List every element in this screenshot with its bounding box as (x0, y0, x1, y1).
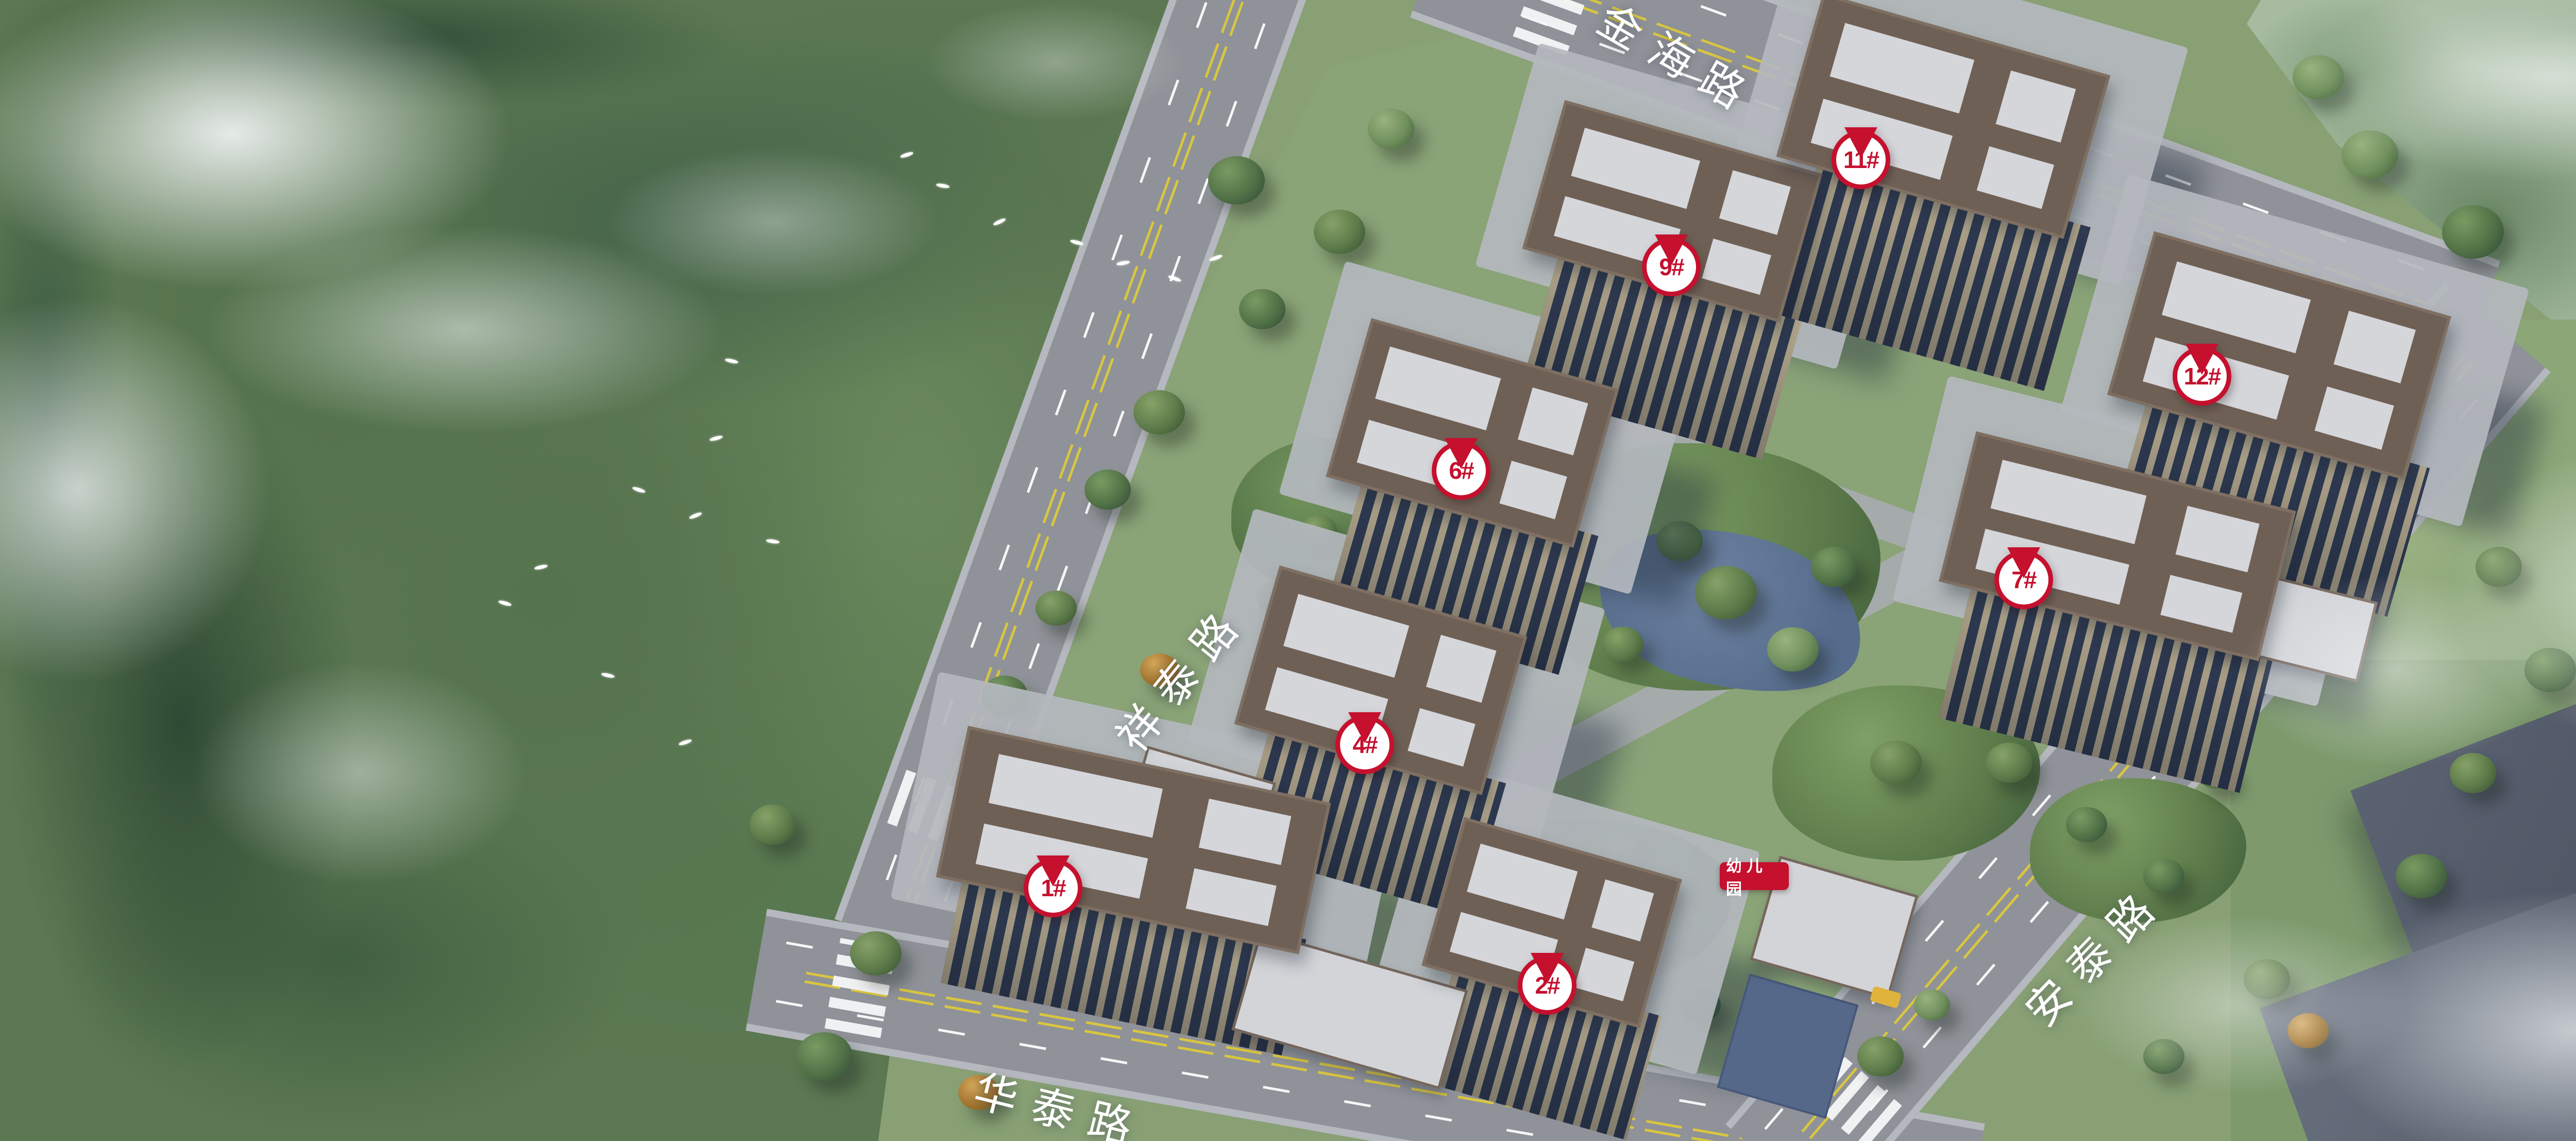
marker-pointer-icon (1445, 438, 1478, 469)
marker-pointer-icon (1655, 234, 1688, 265)
tree (1914, 989, 1950, 1020)
tree (2342, 130, 2398, 179)
tree (1767, 627, 1819, 672)
tree (1986, 743, 2032, 782)
tree (1208, 156, 1265, 205)
crosswalk (1513, 0, 1604, 56)
tree (1811, 547, 1857, 586)
tree (2244, 959, 2290, 999)
tree (2450, 753, 2496, 793)
tree (1036, 591, 1077, 626)
tree (1314, 210, 1365, 254)
marker-pointer-icon (2007, 547, 2040, 578)
tree (1133, 390, 1185, 434)
existing-buildings-southeast (2231, 660, 2576, 1141)
tree (1084, 469, 1131, 509)
tree (2066, 807, 2107, 843)
tree (1602, 627, 1643, 662)
marker-pointer-icon (1531, 953, 1564, 984)
tree (1368, 109, 1414, 148)
kindergarten-label: 幼儿园 (1720, 862, 1789, 890)
tree (1870, 741, 1922, 785)
tree (1857, 1036, 1904, 1076)
tree (2396, 854, 2447, 898)
tree (750, 804, 796, 844)
marker-pointer-icon (1037, 855, 1070, 886)
tree (1695, 566, 1757, 619)
tree (2524, 648, 2576, 692)
tree (2476, 547, 2522, 586)
tree (2143, 1039, 2184, 1075)
marker-pointer-icon (2185, 344, 2218, 375)
marker-pointer-icon (1844, 127, 1877, 158)
tree (850, 931, 902, 976)
tree (2442, 205, 2504, 258)
tree (2287, 1013, 2329, 1049)
tree (796, 1032, 853, 1081)
tree (1239, 289, 1285, 329)
tree (2293, 55, 2344, 99)
aerial-rendering: 金海路祥泰路华泰路安泰路 1#2#4#6#7#9#11#12# 幼儿园 鸟瞰图 (0, 0, 2576, 1141)
marker-pointer-icon (1348, 712, 1381, 743)
